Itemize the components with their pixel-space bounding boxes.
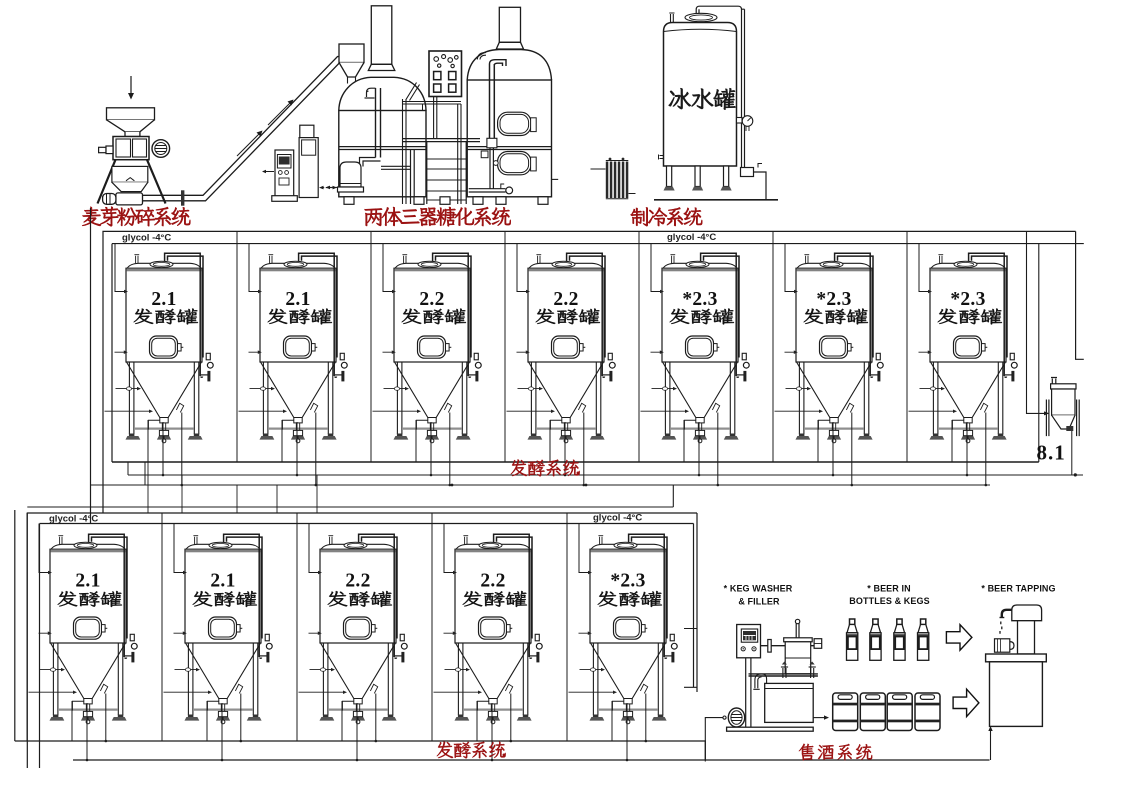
svg-text:*2.3: *2.3 [816,289,851,310]
svg-text:* KEG WASHER: * KEG WASHER [724,584,793,594]
svg-text:2.2: 2.2 [419,289,444,310]
svg-text:2.1: 2.1 [75,571,100,592]
svg-text:*2.3: *2.3 [610,571,645,592]
svg-text:8.1: 8.1 [1037,441,1066,465]
svg-text:glycol -4°C: glycol -4°C [122,233,171,244]
svg-text:* BEER TAPPING: * BEER TAPPING [981,584,1055,594]
svg-text:2.2: 2.2 [480,571,505,592]
svg-text:glycol -4°C: glycol -4°C [49,514,98,525]
svg-text:& FILLER: & FILLER [738,597,780,607]
svg-text:*2.3: *2.3 [950,289,985,310]
svg-text:2.1: 2.1 [210,571,235,592]
svg-text:* BEER IN: * BEER IN [867,584,910,594]
svg-text:glycol -4°C: glycol -4°C [593,513,642,524]
svg-text:*2.3: *2.3 [682,289,717,310]
svg-text:2.2: 2.2 [553,289,578,310]
svg-text:2.1: 2.1 [151,289,176,310]
svg-text:glycol -4°C: glycol -4°C [667,232,716,243]
svg-text:2.1: 2.1 [285,289,310,310]
svg-text:BOTTLES & KEGS: BOTTLES & KEGS [849,596,929,606]
svg-text:2.2: 2.2 [345,571,370,592]
